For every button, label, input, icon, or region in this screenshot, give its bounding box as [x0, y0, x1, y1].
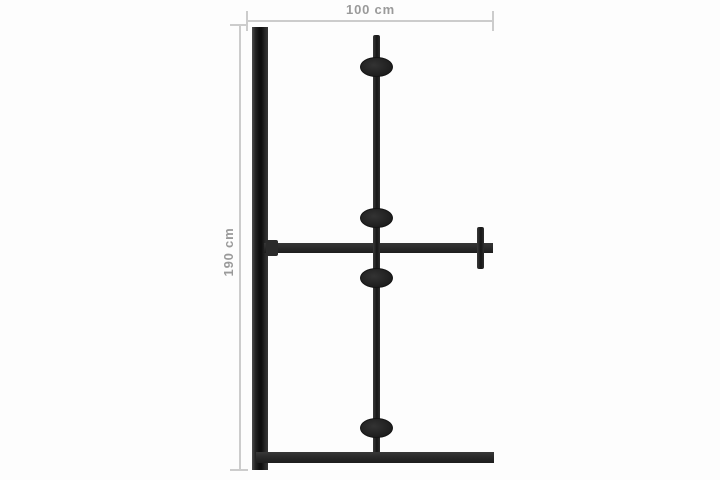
hinge-connector-3 — [360, 268, 393, 288]
height-dimension-tick-bottom — [230, 469, 248, 471]
hinge-connector-4 — [360, 418, 393, 438]
floor-bar — [256, 452, 494, 463]
hinge-connector-2 — [360, 208, 393, 228]
height-dimension-label: 190 cm — [221, 222, 237, 282]
width-dimension-label: 100 cm — [247, 2, 494, 18]
width-dimension-tick-left — [246, 11, 248, 31]
crossbar-end-handle — [477, 227, 484, 269]
hinge-connector-1 — [360, 57, 393, 77]
height-dimension-tick-top — [230, 24, 248, 26]
width-dimension-line — [247, 20, 494, 22]
height-dimension-line — [239, 25, 241, 471]
center-pole — [373, 35, 380, 452]
width-dimension-tick-right — [492, 11, 494, 31]
crossbar-wall-connector — [266, 240, 278, 256]
product-dimension-diagram: 100 cm 190 cm — [0, 0, 720, 480]
